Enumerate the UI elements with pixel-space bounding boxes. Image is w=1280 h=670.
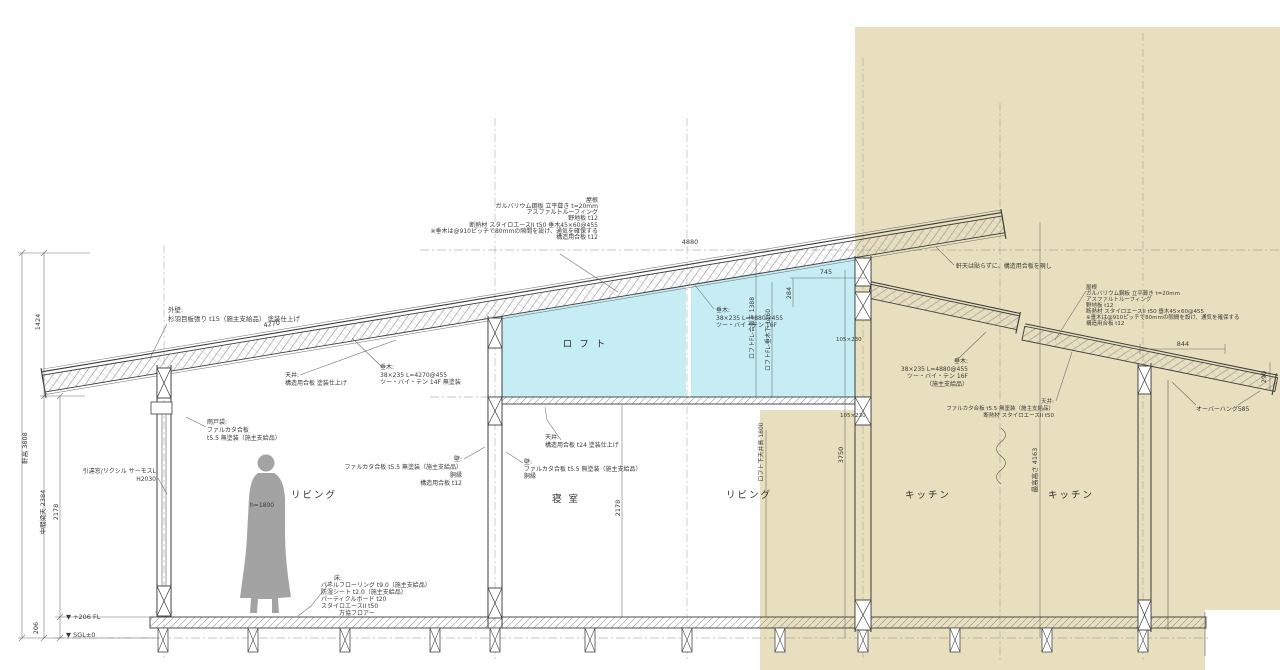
svg-text:野地板 t12: 野地板 t12 — [1086, 301, 1113, 309]
svg-text:垂木:: 垂木: — [954, 357, 968, 365]
shutter-pocket — [151, 402, 172, 414]
room-bedroom: 寝 室 — [552, 493, 580, 505]
spec-wall-center-right: 壁: ファルカタ合板 t5.5 無塗装（施主支給品） 胴縁 — [524, 458, 642, 480]
dim-ch-living: 2178 — [52, 504, 60, 521]
svg-text:38×235 L=4270@455: 38×235 L=4270@455 — [380, 372, 447, 379]
eave-note: 軒天は貼らずに、構造用合板を現し — [956, 262, 1052, 270]
spec-ceiling-loft: 天井: 構造用合板 t24 塗装仕上げ — [545, 433, 619, 449]
room-living-right: リビング — [726, 489, 772, 501]
wall-left — [151, 365, 173, 617]
person-silhouette: h=1800 — [240, 455, 291, 614]
dim-loft-rafter: ロフトFL-垂木下 1160 — [764, 309, 772, 371]
svg-text:野地板 t12: 野地板 t12 — [568, 214, 598, 222]
svg-text:構造用合板 t12: 構造用合板 t12 — [420, 479, 462, 487]
room-kitchen-right: キッチン — [1048, 490, 1094, 501]
svg-text:パーティクルボード t20: パーティクルボード t20 — [321, 595, 387, 603]
dim-mid-beam: 中間梁天 2384 — [38, 490, 47, 535]
section-drawing: h=1800 — [0, 0, 1280, 670]
dim-under-loft: ロフト下天井高 1800 — [757, 422, 765, 481]
svg-text:アスファルトルーフィング: アスファルトルーフィング — [1086, 295, 1152, 303]
svg-text:ファルカタ合板 t5.5 無塗装（施主支給品）: ファルカタ合板 t5.5 無塗装（施主支給品） — [524, 465, 642, 473]
svg-text:ファルカタ合板: ファルカタ合板 — [207, 426, 249, 434]
svg-text:床:: 床: — [334, 574, 342, 582]
dim-206: 206 — [32, 622, 40, 634]
svg-text:雨戸袋:: 雨戸袋: — [207, 418, 227, 426]
dim-284: 284 — [785, 287, 793, 299]
svg-text:ガルバリウム鋼板 立平葺き t=20mm: ガルバリウム鋼板 立平葺き t=20mm — [1086, 289, 1180, 297]
loft-floor — [490, 397, 868, 404]
spec-wall-center-left: 壁: ファルカタ合板 t5.5 無塗装（施主支給品） 胴縁 構造用合板 t12 — [344, 455, 462, 487]
svg-text:スタイロエースII t50: スタイロエースII t50 — [321, 602, 378, 610]
spec-ext-wall: 外壁: 杉羽目板張り t15（施主支給品） 塗装仕上げ — [168, 305, 300, 323]
svg-text:垂木:: 垂木: — [716, 306, 730, 314]
svg-text:垂木:: 垂木: — [380, 363, 394, 371]
beam-size-lower: 105×230 — [840, 413, 866, 419]
spec-window: 引違窓/リクシル サーモスL H2030 — [83, 467, 157, 483]
svg-text:天井:: 天井: — [1041, 397, 1054, 405]
svg-text:38×235 L=4880@455: 38×235 L=4880@455 — [901, 366, 968, 373]
ground-floor — [150, 617, 1206, 628]
svg-text:外壁:: 外壁: — [168, 305, 183, 314]
svg-text:天井:: 天井: — [545, 433, 559, 441]
dim-745: 745 — [820, 268, 832, 276]
svg-text:構造用合板 t12: 構造用合板 t12 — [1086, 319, 1124, 327]
dim-ch-bedroom: 2178 — [614, 500, 622, 517]
dim-3750: 3750 — [837, 447, 845, 464]
room-kitchen-left: キッチン — [905, 490, 951, 501]
dim-max-height: 最高高さ 4163 — [1030, 448, 1039, 493]
dim-290: 290 — [1260, 371, 1268, 383]
svg-text:胴縁: 胴縁 — [524, 472, 536, 480]
svg-text:壁:: 壁: — [524, 458, 532, 466]
svg-text:引違窓/リクシル サーモスL: 引違窓/リクシル サーモスL — [83, 467, 157, 475]
svg-text:ファルカタ合板 t5.5 無塗装（施主支給品）: ファルカタ合板 t5.5 無塗装（施主支給品） — [946, 404, 1054, 412]
spec-roof-left: 屋根 ガルバリウム鋼板 立平葺き t=20mm アスファルトルーフィング 野地板… — [430, 196, 598, 241]
room-loft: ロ フ ト — [563, 339, 608, 350]
sgl-mark: ▼ SGL±0 — [66, 631, 95, 639]
svg-text:断熱材 スタイロエースII t50 垂木45×60@455: 断熱材 スタイロエースII t50 垂木45×60@455 — [1086, 307, 1204, 315]
svg-text:天井:: 天井: — [285, 371, 299, 379]
spec-floor: 床: パネルフローリング t9.0（施主支給品） 防湿シート t2.0（施主支給… — [321, 574, 431, 617]
dim-4270: 4270 — [263, 319, 281, 330]
dim-844: 844 — [1177, 340, 1189, 348]
spec-ceiling-slope: 天井: 構造用合板 塗装仕上げ — [285, 371, 347, 387]
svg-text:H2030: H2030 — [136, 476, 156, 483]
dim-1424: 1424 — [34, 314, 42, 331]
svg-text:胴縁: 胴縁 — [450, 471, 462, 479]
svg-text:断熱材 スタイロエースII t50: 断熱材 スタイロエースII t50 — [983, 411, 1054, 419]
svg-text:ファルカタ合板 t5.5 無塗装（施主支給品）: ファルカタ合板 t5.5 無塗装（施主支給品） — [344, 463, 462, 471]
svg-text:杉羽目板張り t15（施主支給品） 塗装仕上げ: 杉羽目板張り t15（施主支給品） 塗装仕上げ — [168, 314, 300, 323]
spec-shutter-box: 雨戸袋: ファルカタ合板 t5.5 無塗装（施主支給品） — [207, 418, 281, 442]
svg-text:構造用合板 t12: 構造用合板 t12 — [556, 233, 598, 241]
dim-loft-plywood: ロフトFL-合板下 1388 — [748, 297, 756, 359]
figure-height-label: h=1800 — [250, 502, 274, 509]
svg-text:万協フロアー: 万協フロアー — [339, 609, 375, 617]
overhang-note: オーバーハング585 — [1196, 405, 1249, 413]
svg-text:壁:: 壁: — [454, 455, 462, 463]
dim-4880: 4880 — [682, 238, 699, 246]
spec-rafter-left: 垂木: 38×235 L=4270@455 ツー・バイ・テン 14F 無塗装 — [380, 363, 461, 386]
svg-text:t5.5 無塗装（施主支給品）: t5.5 無塗装（施主支給品） — [207, 434, 281, 442]
svg-text:※垂木は@910ピッチで80mmの隙間を設け、通気を確保する: ※垂木は@910ピッチで80mmの隙間を設け、通気を確保する — [1086, 313, 1240, 321]
svg-text:ツー・バイ・テン 16F: ツー・バイ・テン 16F — [907, 373, 969, 380]
roof-right-title: 屋根 — [1086, 283, 1098, 291]
svg-text:パネルフローリング t9.0（施主支給品）: パネルフローリング t9.0（施主支給品） — [321, 581, 431, 589]
svg-text:構造用合板 塗装仕上げ: 構造用合板 塗装仕上げ — [285, 379, 347, 387]
room-living-left: リビング — [291, 489, 337, 501]
fl-mark: ▼ +206 FL — [66, 613, 101, 621]
dim-eave-height: 軒高 3808 — [20, 432, 29, 464]
svg-text:防湿シート t2.0（施主支給品）: 防湿シート t2.0（施主支給品） — [321, 588, 407, 596]
svg-text:構造用合板 t24 塗装仕上げ: 構造用合板 t24 塗装仕上げ — [545, 441, 619, 449]
svg-text:ツー・バイ・テン 14F 無塗装: ツー・バイ・テン 14F 無塗装 — [380, 378, 461, 386]
beam-size-upper: 105×230 — [836, 337, 862, 343]
svg-text:（施主支給品）: （施主支給品） — [926, 380, 968, 388]
section-drawing-sheet: h=1800 — [0, 0, 1280, 670]
